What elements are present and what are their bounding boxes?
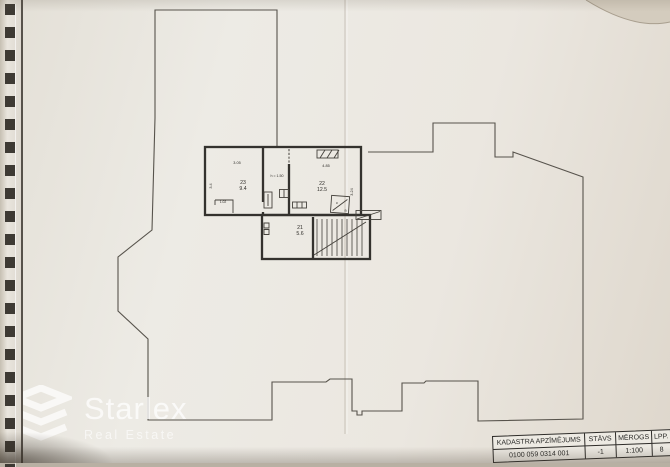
room21-area: 5.6 xyxy=(296,231,303,237)
dim-room22-right: 3.24 xyxy=(350,188,354,195)
header-lpp: LPP. xyxy=(652,430,670,444)
chimney-block xyxy=(317,150,339,158)
value-floor: -1 xyxy=(585,445,616,458)
value-page: 8 xyxy=(652,443,670,456)
unit-lower-block xyxy=(262,215,370,259)
room21-marks xyxy=(264,223,269,235)
spiral-binding-strip xyxy=(0,0,23,463)
staircase xyxy=(314,219,366,256)
radiator xyxy=(293,202,307,208)
value-scale: 1:100 xyxy=(616,444,652,457)
passage-height-label: h = 1.50 xyxy=(270,174,283,178)
radiator-lines xyxy=(297,202,302,208)
dim-room23-left: 3.4 xyxy=(209,183,213,188)
shower-letter-c: c xyxy=(336,200,338,205)
room23-area: 9.4 xyxy=(239,186,246,192)
header-stavs: STĀVS xyxy=(585,432,616,446)
dim-room22-top: 4.85 xyxy=(322,164,329,168)
stair-treads xyxy=(317,219,362,256)
binding-holes xyxy=(5,4,15,467)
floor-plan-drawing: 23 9.4 22 12.5 21 5.6 h = 1.50 3.05 4.85… xyxy=(0,0,670,463)
room22-area: 12.5 xyxy=(317,187,327,193)
dim-room23-top: 3.05 xyxy=(233,161,240,165)
value-cadastre-number: 0100 059 0314 001 xyxy=(494,446,586,462)
dim-room23-niche: 1.02 xyxy=(220,200,227,204)
photo-scene: 23 9.4 22 12.5 21 5.6 h = 1.50 3.05 4.85… xyxy=(0,0,670,463)
